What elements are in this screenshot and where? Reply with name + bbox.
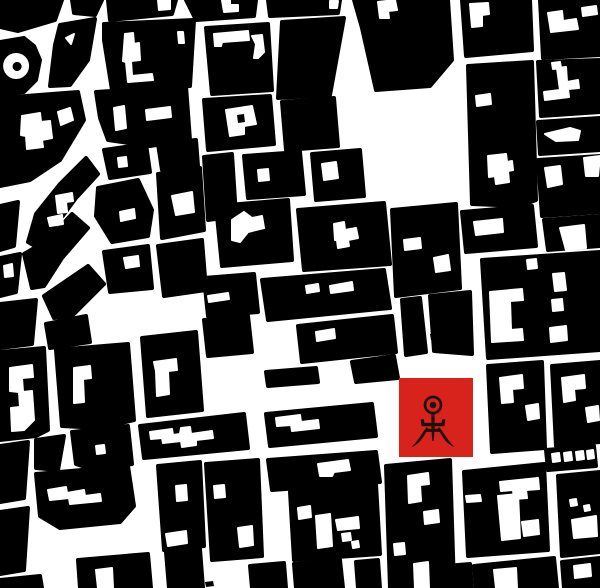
location-marker — [399, 378, 473, 457]
city-map-artwork — [0, 0, 600, 588]
red-marker-square — [399, 378, 473, 457]
map-canvas — [0, 0, 600, 588]
